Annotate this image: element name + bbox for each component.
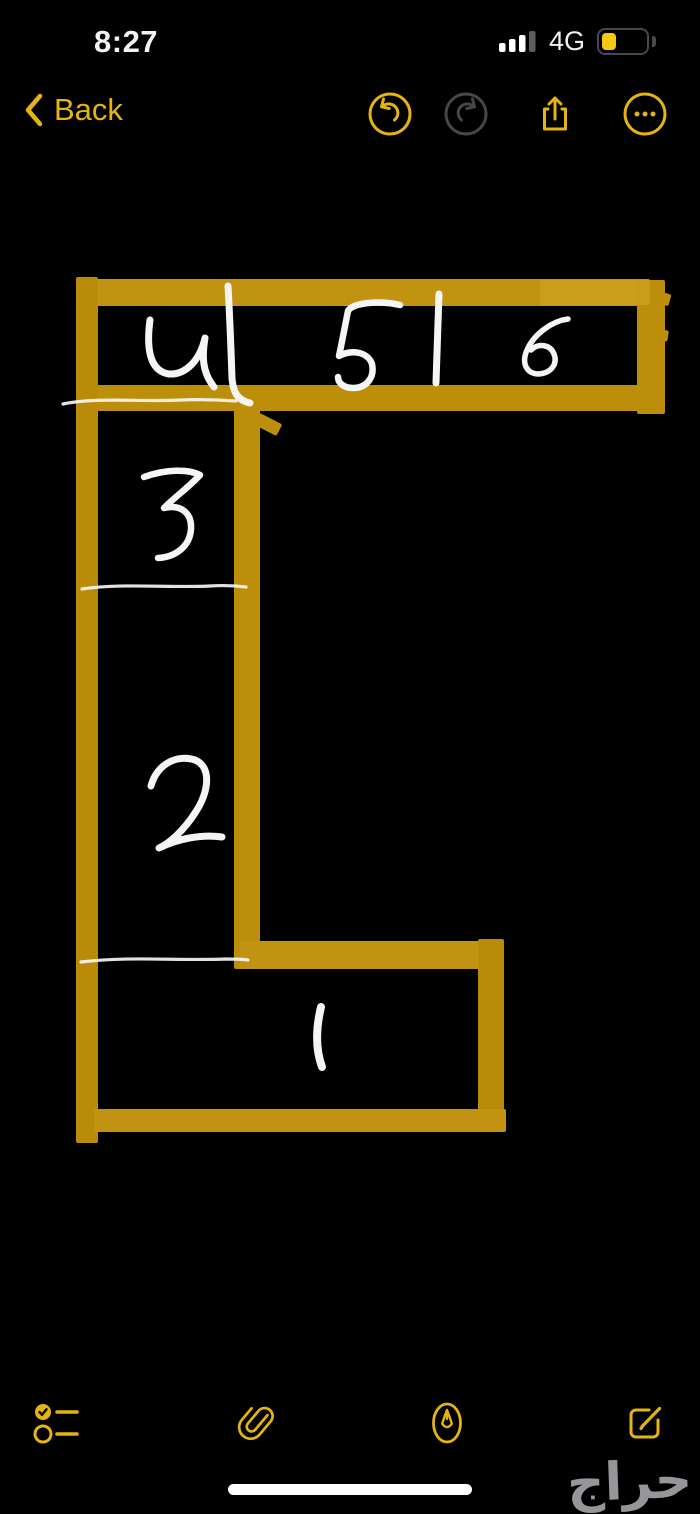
sketch-stroke-digit-2	[151, 758, 222, 848]
haraj-watermark: حراج	[566, 1450, 693, 1514]
sketch-stroke-digit-3	[144, 471, 200, 558]
sketch-stroke-divider-left	[228, 286, 250, 403]
sketch-stroke-rule-mid	[82, 586, 246, 589]
sketch-ink-strokes	[0, 0, 700, 1514]
markup-pen-icon[interactable]	[425, 1400, 469, 1446]
sketch-stroke-rule-bottom	[81, 959, 248, 962]
sketch-stroke-rule-top	[63, 400, 236, 404]
compose-icon[interactable]	[622, 1400, 668, 1446]
sketch-stroke-digit-1	[317, 1007, 322, 1067]
paperclip-icon[interactable]	[232, 1400, 278, 1446]
sketch-stroke-divider-right	[436, 294, 439, 383]
home-indicator[interactable]	[228, 1484, 472, 1495]
checklist-icon[interactable]	[32, 1400, 82, 1446]
sketch-stroke-digit-5	[338, 303, 400, 388]
sketch-canvas[interactable]	[0, 160, 700, 1350]
sketch-stroke-digit-6	[525, 319, 568, 374]
sketch-stroke-digit-4	[149, 320, 214, 387]
